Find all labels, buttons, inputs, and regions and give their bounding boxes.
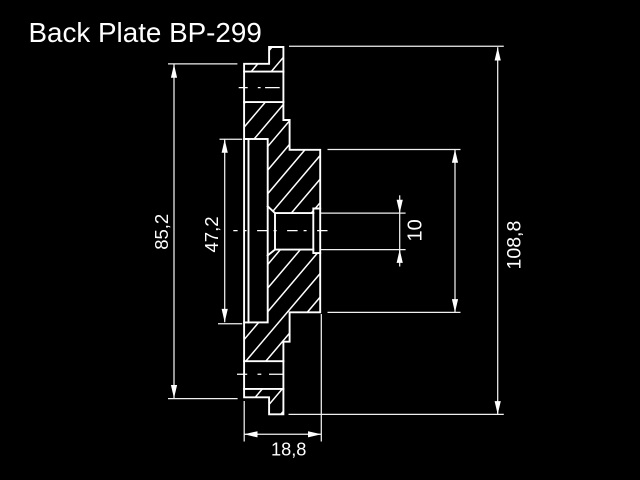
svg-text:47,2: 47,2 bbox=[201, 216, 222, 252]
svg-text:85,2: 85,2 bbox=[151, 214, 172, 250]
svg-text:10: 10 bbox=[405, 219, 427, 241]
svg-text:Back Plate BP-299: Back Plate BP-299 bbox=[29, 17, 262, 48]
svg-text:108,8: 108,8 bbox=[504, 221, 526, 270]
svg-text:18,8: 18,8 bbox=[271, 439, 306, 459]
